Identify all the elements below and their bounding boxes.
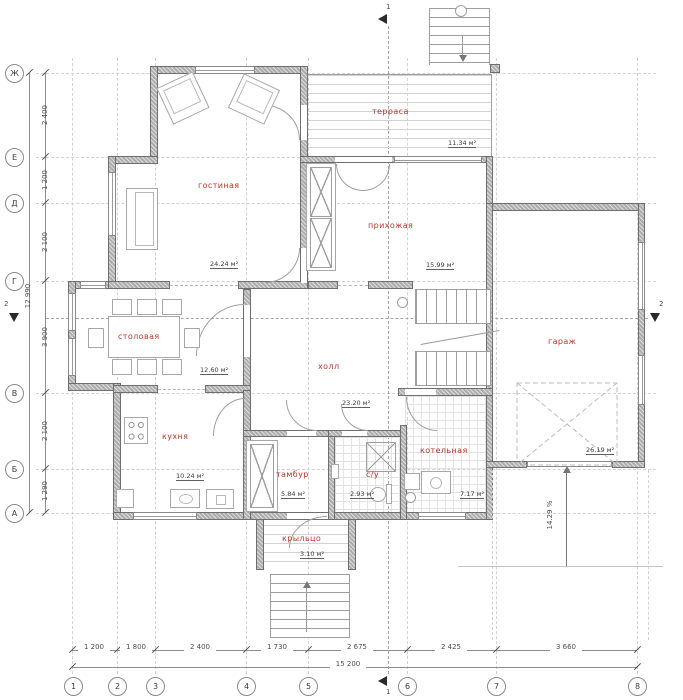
wall-hall-north-a [308, 281, 338, 289]
door-arc-french-left [336, 164, 363, 191]
stove [124, 417, 148, 444]
room-label: холл [318, 362, 339, 371]
window [638, 355, 645, 405]
stair-upper-flight [415, 289, 491, 324]
slope-label: 14.29 % [546, 495, 554, 535]
room-area: 7.17 м² [460, 490, 484, 499]
room-area: 11.34 м² [448, 139, 476, 148]
room-label: тамбур [276, 470, 309, 479]
wall-kitchen-north-a [113, 385, 158, 393]
stair-lower-flight [415, 351, 491, 386]
door-opening [287, 431, 316, 436]
dim-label: 1 800 [120, 643, 152, 651]
axis-bubble-3: 3 [146, 677, 165, 696]
room-label: столовая [118, 332, 160, 341]
room-label: с/у [366, 470, 379, 479]
slope-arrow-head [563, 466, 571, 473]
kitchen-appliance [206, 489, 234, 509]
stair-newel-marker [397, 297, 408, 308]
axis-bubble-d: Д [5, 194, 24, 213]
dim-label: 3 900 [41, 322, 49, 352]
sofa-seat [135, 192, 154, 246]
opening-dash [170, 285, 238, 286]
window [68, 338, 76, 376]
door-arc [286, 400, 317, 431]
door-opening [244, 305, 250, 357]
dining-chair [137, 299, 157, 315]
door-opening [335, 157, 392, 162]
dimension-tick [26, 509, 33, 516]
dining-chair [137, 359, 157, 375]
window [638, 242, 645, 310]
wardrobe-x [310, 218, 332, 268]
sofa [126, 188, 158, 250]
appliance-detail [216, 495, 226, 505]
section-arrow-1-bottom [378, 676, 387, 686]
room-label: кухня [162, 432, 188, 441]
window [108, 172, 116, 236]
wall-bathroom-north [328, 430, 407, 437]
sink-basin [179, 494, 193, 504]
dim-label: 1 730 [261, 643, 293, 651]
axis-bubble-e: Е [5, 148, 24, 167]
section-label: 2 [659, 300, 663, 308]
dim-label: 1 200 [78, 643, 110, 651]
room-area: 26.19 м² [586, 446, 614, 455]
dining-chair [184, 328, 200, 348]
room-area: 24.24 м² [210, 260, 238, 269]
door-arc [213, 398, 245, 436]
room-area: 15.99 м² [426, 261, 454, 270]
room-label: крыльцо [282, 534, 321, 543]
wall-living-south-east [238, 281, 308, 289]
door-arc [196, 304, 244, 356]
section-arrow-1-top [378, 14, 387, 24]
dining-chair [112, 299, 132, 315]
axis-bubble-6: 6 [398, 677, 417, 696]
stair-direction-arrow [303, 581, 311, 588]
driveway-edge [492, 470, 493, 640]
door-arc [265, 248, 300, 283]
dining-chair [162, 359, 182, 375]
room-label: гараж [548, 337, 576, 346]
window [418, 512, 466, 520]
section-arrow-2-right [650, 313, 660, 322]
armchair-seat [163, 78, 201, 114]
wall-terrace-corner-post [490, 64, 500, 73]
opening-dash [158, 389, 205, 390]
room-label: прихожая [368, 221, 413, 230]
room-area: 10.24 м² [176, 472, 204, 481]
axis-bubble-1: 1 [64, 677, 83, 696]
axis-bubble-2: 2 [108, 677, 127, 696]
dim-label: 2 425 [435, 643, 467, 651]
section-arrow-2-left [9, 313, 19, 322]
bathroom-sink [331, 464, 339, 479]
room-label: терраса [372, 107, 409, 116]
axis-bubble-5: 5 [299, 677, 318, 696]
axis-bubble-7: 7 [487, 677, 506, 696]
dining-chair [88, 328, 104, 348]
dim-label: 3 660 [550, 643, 582, 651]
door-opening [342, 431, 367, 436]
boiler-unit [404, 473, 420, 490]
stair-direction-line [462, 36, 463, 56]
wardrobe-x [310, 167, 332, 217]
window [195, 66, 255, 74]
axis-bubble-a: А [5, 504, 24, 523]
room-label: котельная [420, 446, 468, 455]
stair-direction-line [306, 588, 307, 632]
axis-bubble-b: Б [5, 460, 24, 479]
wall-living-south-west [108, 281, 170, 289]
wall-garage-north [486, 203, 645, 211]
axis-bubble-g: Г [5, 272, 24, 291]
shower-tray [366, 442, 396, 472]
floor-drain [405, 492, 416, 503]
window [394, 156, 482, 163]
porch-side-wall [348, 514, 356, 570]
axis-bubble-8: 8 [628, 677, 647, 696]
stair-direction-arrow [459, 55, 467, 62]
door-opening [301, 105, 307, 140]
section-label: 2 [4, 300, 8, 308]
kitchen-sink [170, 489, 200, 508]
room-label: гостиная [198, 181, 240, 190]
window [68, 293, 76, 331]
floor-plan-canvas: 1 1 2 2 [0, 0, 683, 700]
dim-label: 2 100 [41, 416, 49, 446]
room-area: 23.20 м² [342, 399, 370, 408]
driveway-line [458, 566, 663, 567]
armchair-seat [236, 80, 273, 114]
equipment-dial [430, 477, 442, 489]
dining-chair [162, 299, 182, 315]
kitchen-cabinet [116, 489, 134, 508]
room-area: 2.93 м² [350, 490, 374, 499]
room-area: 3.10 м² [300, 550, 324, 559]
opening-dash [338, 285, 368, 286]
dim-label: 2 400 [41, 100, 49, 130]
dim-label: 1 200 [41, 165, 49, 195]
slope-arrow-line [566, 472, 567, 566]
dim-label: 2 100 [41, 227, 49, 257]
window [133, 512, 197, 520]
axis-bubble-v: В [5, 384, 24, 403]
dining-chair [112, 359, 132, 375]
window [80, 281, 106, 289]
door-opening [405, 389, 436, 395]
grid-line-col-7 [496, 58, 497, 674]
armchair [156, 71, 209, 124]
stair-start-marker [455, 5, 467, 17]
door-arc-french-right [363, 164, 390, 191]
wardrobe-x [250, 444, 274, 508]
axis-bubble-zh: Ж [5, 64, 24, 83]
dim-total-label: 15 200 [330, 660, 366, 668]
toilet-tank [386, 484, 392, 504]
door-arc [341, 404, 368, 431]
porch-side-wall [256, 514, 264, 570]
driveway-edge [648, 470, 649, 640]
dim-total-label: 12 990 [24, 281, 32, 311]
wall-hall-north-b [368, 281, 413, 289]
room-area: 12.60 м² [200, 366, 228, 375]
dim-label: 2 675 [341, 643, 373, 651]
boiler-equipment [421, 471, 451, 494]
dim-label: 1 290 [41, 476, 49, 506]
axis-bubble-4: 4 [237, 677, 256, 696]
dimension-line-left [45, 73, 46, 513]
section-label: 1 [386, 688, 390, 696]
wall-living-west-upper [150, 66, 158, 163]
dim-label: 2 400 [184, 643, 216, 651]
section-label: 1 [386, 3, 390, 11]
room-area: 5.84 м² [281, 490, 305, 499]
